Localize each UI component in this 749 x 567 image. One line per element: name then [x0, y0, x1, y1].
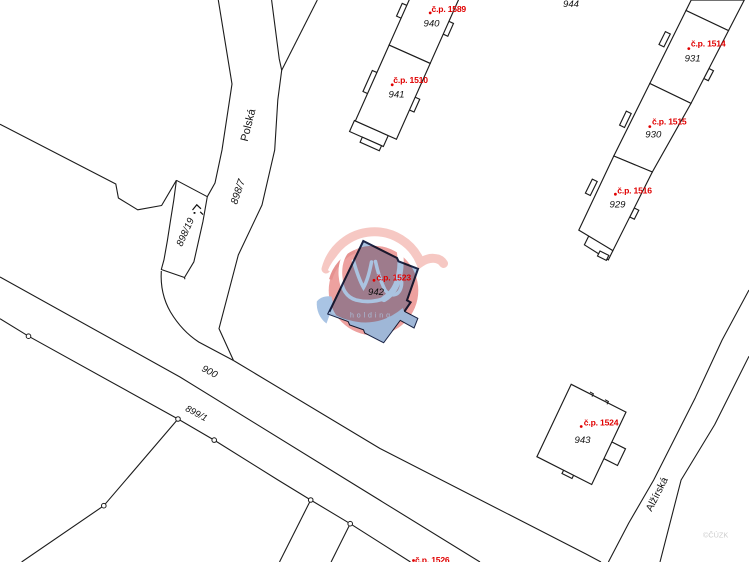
svg-text:č.p. 1514: č.p. 1514 — [691, 39, 726, 49]
svg-text:č.p. 1516: č.p. 1516 — [617, 186, 652, 196]
svg-text:929: 929 — [610, 200, 627, 211]
svg-text:944: 944 — [563, 0, 579, 10]
svg-text:©ČÚZK: ©ČÚZK — [703, 531, 728, 540]
svg-text:č.p. 1523: č.p. 1523 — [376, 272, 411, 282]
svg-text:č.p. 1510: č.p. 1510 — [393, 75, 428, 85]
svg-text:č.p. 1524: č.p. 1524 — [584, 417, 619, 427]
svg-text:č.p. 1526: č.p. 1526 — [415, 555, 450, 562]
svg-text:940: 940 — [424, 19, 441, 30]
svg-text:943: 943 — [575, 435, 592, 446]
svg-text:930: 930 — [645, 130, 662, 141]
svg-text:941: 941 — [389, 89, 405, 100]
svg-text:931: 931 — [685, 53, 701, 64]
svg-text:942: 942 — [368, 287, 385, 298]
svg-text:č.p. 1589: č.p. 1589 — [432, 4, 467, 14]
svg-text:č.p. 1515: č.p. 1515 — [652, 116, 687, 126]
